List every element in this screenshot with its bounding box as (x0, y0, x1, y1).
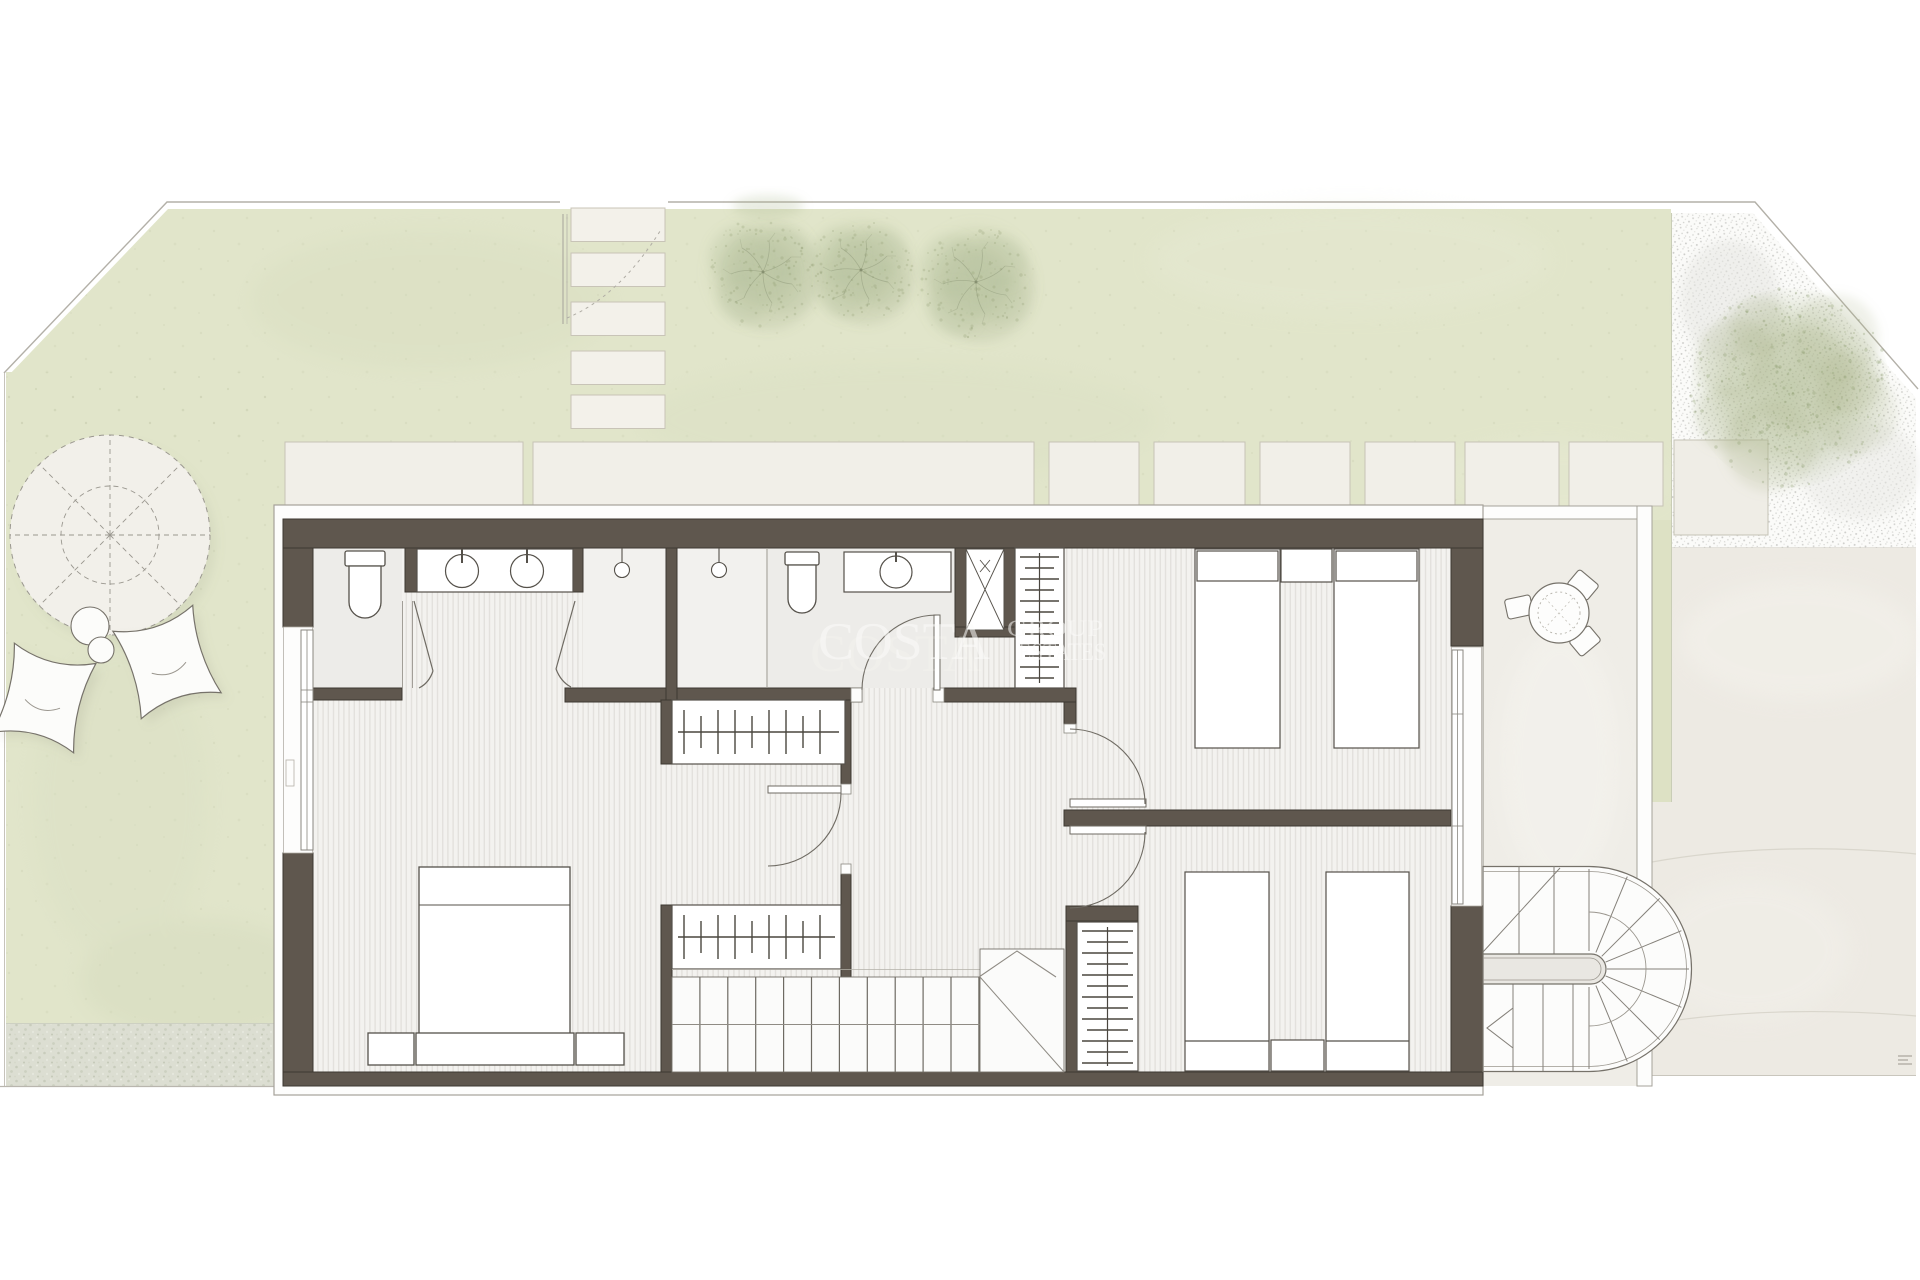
svg-text:COSTA: COSTA (810, 625, 982, 683)
svg-text:ESTATES: ESTATES (1018, 639, 1106, 666)
svg-text:GROUP: GROUP (1007, 616, 1103, 641)
